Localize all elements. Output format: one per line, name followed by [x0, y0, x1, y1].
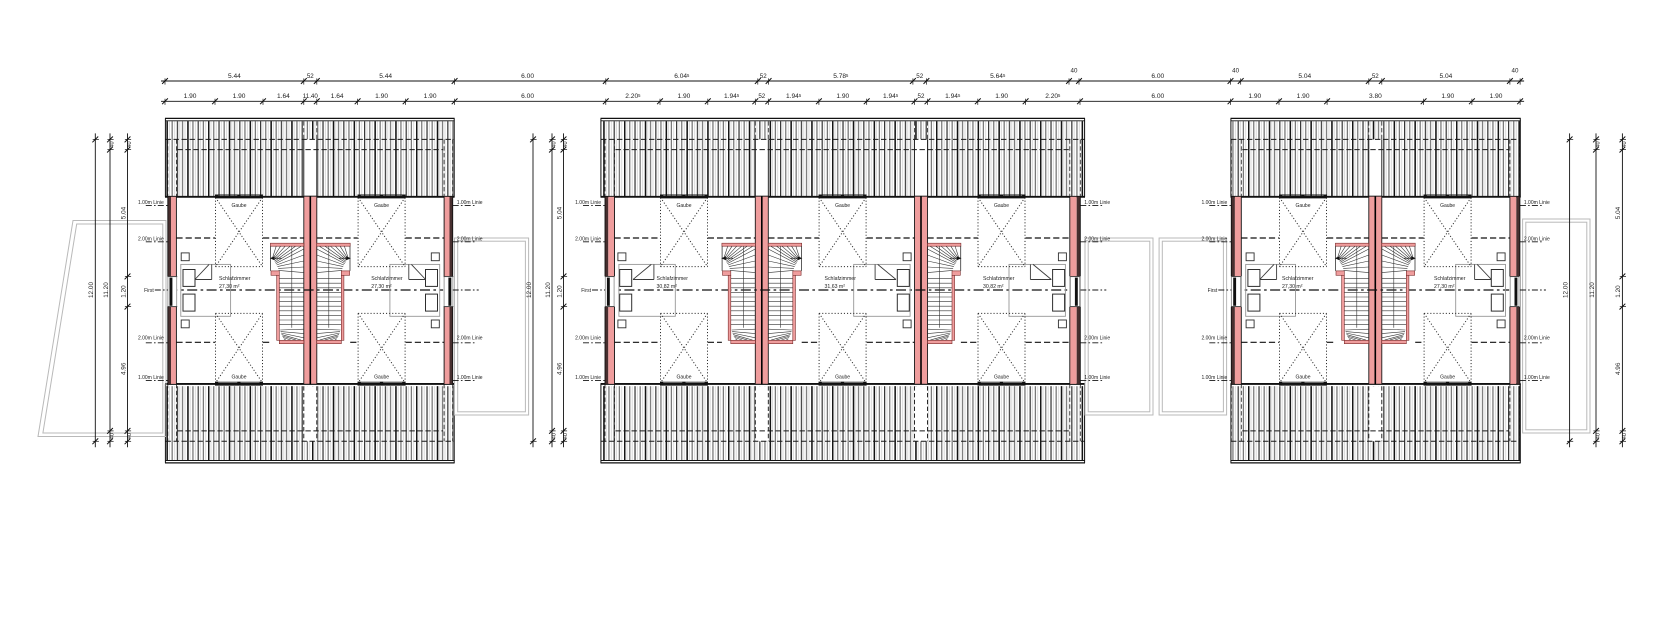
- svg-text:1.00m Linie: 1.00m Linie: [1524, 375, 1550, 381]
- svg-text:2.00m Linie: 2.00m Linie: [1084, 236, 1110, 242]
- svg-text:11.20: 11.20: [103, 282, 110, 298]
- svg-text:12.00: 12.00: [1562, 282, 1569, 298]
- svg-text:1.64: 1.64: [331, 93, 344, 100]
- svg-text:40: 40: [1232, 68, 1239, 75]
- svg-text:1.90: 1.90: [375, 93, 388, 100]
- svg-text:6.00: 6.00: [1151, 93, 1164, 100]
- svg-text:40: 40: [1071, 68, 1078, 75]
- svg-text:2.00m Linie: 2.00m Linie: [1201, 236, 1227, 242]
- svg-text:1.00m Linie: 1.00m Linie: [457, 200, 483, 206]
- svg-text:1.00m Linie: 1.00m Linie: [1084, 375, 1110, 381]
- svg-text:Gaube: Gaube: [1440, 374, 1455, 380]
- svg-text:52: 52: [916, 73, 923, 80]
- svg-text:40: 40: [551, 433, 557, 439]
- svg-text:5.04: 5.04: [556, 206, 563, 219]
- svg-text:11.40: 11.40: [303, 93, 319, 100]
- svg-text:1.00m Linie: 1.00m Linie: [575, 375, 601, 381]
- svg-text:1.90: 1.90: [233, 93, 246, 100]
- svg-text:5.04: 5.04: [1615, 206, 1622, 219]
- svg-text:Schlafzimmer: Schlafzimmer: [657, 276, 689, 282]
- svg-text:40: 40: [1595, 141, 1601, 147]
- svg-text:Gaube: Gaube: [231, 203, 246, 209]
- svg-text:5.44: 5.44: [228, 73, 241, 80]
- svg-text:1.20: 1.20: [556, 285, 563, 298]
- svg-text:6.00: 6.00: [521, 73, 534, 80]
- svg-text:5.04: 5.04: [1298, 73, 1311, 80]
- svg-text:1.90: 1.90: [1441, 93, 1454, 100]
- svg-text:2.00m Linie: 2.00m Linie: [575, 236, 601, 242]
- svg-text:40: 40: [1512, 68, 1519, 75]
- svg-text:6.00: 6.00: [521, 93, 534, 100]
- svg-text:5.04: 5.04: [1439, 73, 1452, 80]
- svg-text:Schlafzimmer: Schlafzimmer: [371, 276, 403, 282]
- svg-text:12.00: 12.00: [88, 282, 95, 298]
- svg-text:1.00m Linie: 1.00m Linie: [1201, 200, 1227, 206]
- svg-text:First: First: [144, 288, 154, 294]
- svg-text:2.00m Linie: 2.00m Linie: [575, 335, 601, 341]
- svg-text:3.80: 3.80: [1369, 93, 1382, 100]
- svg-text:40: 40: [127, 433, 133, 439]
- svg-text:1.90: 1.90: [836, 93, 849, 100]
- svg-text:Gaube: Gaube: [374, 203, 389, 209]
- svg-text:4.96: 4.96: [556, 362, 563, 375]
- svg-text:1.20: 1.20: [1615, 285, 1622, 298]
- svg-text:2.00m Linie: 2.00m Linie: [457, 335, 483, 341]
- svg-text:40: 40: [563, 433, 569, 439]
- svg-text:2.00m Linie: 2.00m Linie: [138, 236, 164, 242]
- svg-text:First: First: [1208, 288, 1218, 294]
- svg-text:52: 52: [758, 93, 765, 100]
- svg-text:40: 40: [109, 433, 115, 439]
- svg-text:52: 52: [1372, 73, 1379, 80]
- svg-text:2.00m Linie: 2.00m Linie: [1084, 335, 1110, 341]
- svg-text:Gaube: Gaube: [374, 374, 389, 380]
- svg-text:1.64: 1.64: [277, 93, 290, 100]
- svg-text:Gaube: Gaube: [676, 203, 691, 209]
- svg-text:Gaube: Gaube: [835, 374, 850, 380]
- svg-text:40: 40: [551, 141, 557, 147]
- svg-text:1.00m Linie: 1.00m Linie: [1524, 200, 1550, 206]
- svg-text:40: 40: [1595, 433, 1601, 439]
- svg-text:6.00: 6.00: [1151, 73, 1164, 80]
- svg-text:First: First: [581, 288, 591, 294]
- svg-text:5.04: 5.04: [120, 206, 127, 219]
- svg-text:Gaube: Gaube: [1295, 374, 1310, 380]
- svg-text:30,82 m²: 30,82 m²: [983, 284, 1004, 290]
- svg-text:Gaube: Gaube: [1295, 203, 1310, 209]
- svg-text:2.00m Linie: 2.00m Linie: [1524, 335, 1550, 341]
- svg-text:12.00: 12.00: [526, 282, 533, 298]
- svg-text:1.90: 1.90: [677, 93, 690, 100]
- svg-text:5.44: 5.44: [379, 73, 392, 80]
- svg-text:4.96: 4.96: [120, 362, 127, 375]
- svg-text:52: 52: [760, 73, 767, 80]
- svg-text:1.90: 1.90: [1297, 93, 1310, 100]
- svg-text:Gaube: Gaube: [1440, 203, 1455, 209]
- svg-text:2.00m Linie: 2.00m Linie: [457, 236, 483, 242]
- svg-text:40: 40: [563, 141, 569, 147]
- svg-text:1.90: 1.90: [995, 93, 1008, 100]
- svg-text:52: 52: [918, 93, 925, 100]
- svg-text:11.20: 11.20: [545, 282, 552, 298]
- svg-text:2.00m Linie: 2.00m Linie: [1201, 335, 1227, 341]
- svg-text:2.00m Linie: 2.00m Linie: [138, 335, 164, 341]
- svg-text:2.00m Linie: 2.00m Linie: [1524, 236, 1550, 242]
- svg-text:1.90: 1.90: [184, 93, 197, 100]
- svg-text:1.00m Linie: 1.00m Linie: [138, 375, 164, 381]
- svg-text:52: 52: [307, 73, 314, 80]
- svg-text:40: 40: [127, 141, 133, 147]
- svg-text:1.90: 1.90: [1248, 93, 1261, 100]
- svg-text:30,82 m²: 30,82 m²: [657, 284, 678, 290]
- svg-text:27,30 m²: 27,30 m²: [219, 284, 240, 290]
- svg-text:1.00m Linie: 1.00m Linie: [138, 200, 164, 206]
- svg-text:11.20: 11.20: [1589, 282, 1596, 298]
- svg-text:40: 40: [1622, 141, 1628, 147]
- svg-text:31,63 m²: 31,63 m²: [825, 284, 846, 290]
- svg-text:Schlafzimmer: Schlafzimmer: [1282, 276, 1314, 282]
- svg-text:1.00m Linie: 1.00m Linie: [1201, 375, 1227, 381]
- svg-text:Gaube: Gaube: [676, 374, 691, 380]
- svg-text:Gaube: Gaube: [231, 374, 246, 380]
- svg-text:Gaube: Gaube: [994, 374, 1009, 380]
- svg-text:Gaube: Gaube: [835, 203, 850, 209]
- svg-text:Schlafzimmer: Schlafzimmer: [825, 276, 857, 282]
- svg-text:Gaube: Gaube: [994, 203, 1009, 209]
- svg-text:1.90: 1.90: [1490, 93, 1503, 100]
- svg-text:Schlafzimmer: Schlafzimmer: [1434, 276, 1466, 282]
- svg-text:1.90: 1.90: [424, 93, 437, 100]
- svg-text:27,30 m²: 27,30 m²: [1434, 284, 1455, 290]
- svg-text:1.20: 1.20: [120, 285, 127, 298]
- svg-text:27,30 m²: 27,30 m²: [371, 284, 392, 290]
- svg-text:40: 40: [109, 141, 115, 147]
- svg-text:40: 40: [1622, 433, 1628, 439]
- svg-text:1.00m Linie: 1.00m Linie: [1084, 200, 1110, 206]
- svg-text:1.00m Linie: 1.00m Linie: [575, 200, 601, 206]
- svg-text:27,30 m²: 27,30 m²: [1282, 284, 1303, 290]
- svg-text:4.96: 4.96: [1615, 362, 1622, 375]
- svg-text:Schlafzimmer: Schlafzimmer: [219, 276, 251, 282]
- svg-text:Schlafzimmer: Schlafzimmer: [983, 276, 1015, 282]
- svg-text:1.00m Linie: 1.00m Linie: [457, 375, 483, 381]
